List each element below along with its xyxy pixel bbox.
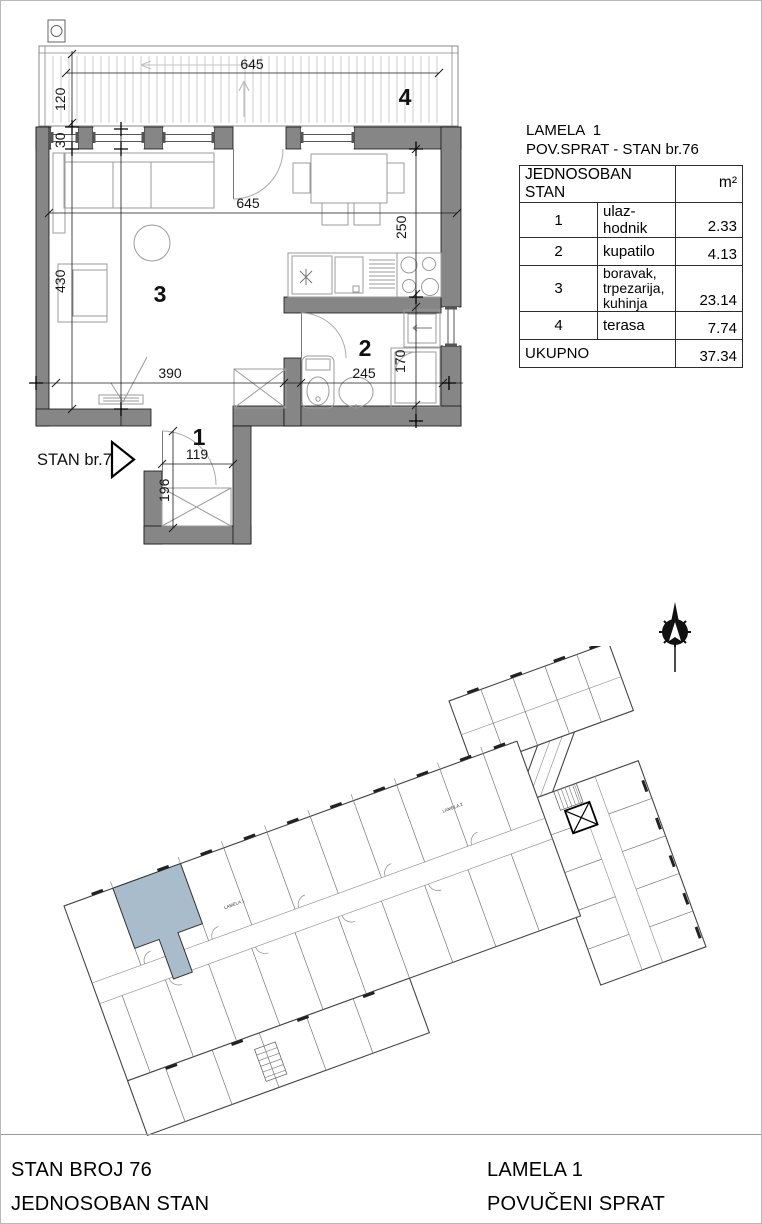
window [163,128,214,149]
footer-floor: POVUČENI SPRAT [487,1187,665,1221]
row-name: ulaz-hodnik [598,203,676,238]
area-total-row: UKUPNO 37.34 [520,340,743,368]
footer-right: LAMELA 1 POVUČENI SPRAT [487,1153,665,1221]
area-table: JEDNOSOBAN STAN m² 1 ulaz-hodnik 2.33 2 … [519,165,743,368]
washing-machine [404,310,440,347]
footer-left: STAN BROJ 76 JEDNOSOBAN STAN [11,1153,209,1221]
shelf [99,357,147,404]
sofa [53,153,214,233]
dim-bath-height: 170 [392,349,408,373]
row-num: 3 [520,266,598,312]
total-label: UKUPNO [520,340,676,368]
row-area: 2.33 [676,203,743,238]
area-row: 3 boravak, trpezarija,kuhinja 23.14 [520,266,743,312]
window [93,128,144,149]
row-name-line1: boravak, trpezarija, [603,265,664,296]
row-num: 2 [520,238,598,266]
row-area: 4.13 [676,238,743,266]
dim-inner-width: 645 [236,195,260,211]
apartment-type-label: JEDNOSOBAN STAN [520,166,676,203]
area-row: 2 kupatilo 4.13 [520,238,743,266]
row-name-line2: kuhinja [603,295,647,311]
window [301,128,354,149]
building-site-plan: LAMELA 1 LAMELA 2 [56,646,711,1141]
apartment-label: STAN br.76 [37,442,134,477]
footer-apartment-type: JEDNOSOBAN STAN [11,1187,209,1221]
site-main-bar: LAMELA 1 LAMELA 2 [62,735,601,1137]
dim-bath-width: 245 [352,365,376,381]
sink-icon [300,269,312,285]
room-living: 3 [154,281,167,307]
basin [339,377,373,409]
area-table-header: JEDNOSOBAN STAN m² [520,166,743,203]
dim-terrace-depth: 120 [52,87,68,111]
row-num: 4 [520,312,598,340]
window [444,307,459,346]
footer-lamela: LAMELA 1 [487,1153,665,1187]
room-bath: 2 [359,335,372,361]
info-panel: LAMELA 1 POV.SPRAT - STAN br.76 JEDNOSOB… [519,121,743,368]
panel-title-floor: POV.SPRAT - STAN br.76 [519,140,743,159]
bath-door-arc [301,313,346,358]
unit-floor-plan: 645 120 30 430 645 250 390 245 170 119 1… [1,1,471,551]
footer-apartment-number: STAN BROJ 76 [11,1153,209,1187]
row-area: 23.14 [676,266,743,312]
room-hall: 1 [193,424,206,450]
row-area: 7.74 [676,312,743,340]
row-name: boravak, trpezarija,kuhinja [598,266,676,312]
coffee-table [134,225,170,261]
footer-divider [1,1134,761,1135]
dim-living-width: 390 [158,365,182,381]
panel-title-lamela: LAMELA 1 [519,121,743,140]
entry-arrow-icon [112,442,134,477]
dim-hall-depth: 196 [156,478,172,502]
toilet [302,356,334,408]
dim-living-height: 430 [52,269,68,293]
room-terrace: 4 [399,84,412,110]
dim-wall: 30 [52,132,68,148]
wardrobe [162,488,231,526]
terrace-door-arc [233,149,283,199]
walls [36,127,461,544]
total-value: 37.34 [676,340,743,368]
row-name: terasa [598,312,676,340]
dim-terrace-width: 645 [240,56,264,72]
kitchen-counter [288,253,441,297]
area-row: 1 ulaz-hodnik 2.33 [520,203,743,238]
dim-kitchen-depth: 250 [393,215,409,239]
row-num: 1 [520,203,598,238]
unit-label: m² [676,166,743,203]
floor-plan-sheet: 645 120 30 430 645 250 390 245 170 119 1… [0,0,762,1224]
row-name: kupatilo [598,238,676,266]
apartment-label-text: STAN br.76 [37,451,121,469]
dining-set [293,154,404,225]
axis-plus-marks [29,120,456,428]
wardrobe [234,369,286,408]
area-row: 4 terasa 7.74 [520,312,743,340]
